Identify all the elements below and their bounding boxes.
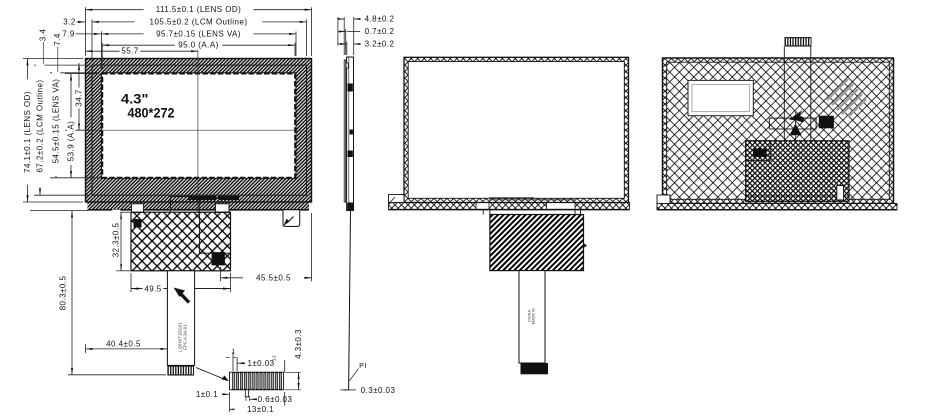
svg-text:480*272: 480*272 [128, 106, 175, 121]
svg-text:4.3": 4.3" [121, 92, 149, 107]
svg-text:0.6±0.03: 0.6±0.03 [258, 395, 293, 404]
svg-text:95.7±0.15 (LENS VA): 95.7±0.15 (LENS VA) [156, 29, 241, 38]
svg-text:FPC-4.3A-01: FPC-4.3A-01 [183, 324, 188, 350]
svg-text:12: 12 [272, 355, 278, 361]
svg-text:32.3±0.5: 32.3±0.5 [112, 223, 121, 258]
svg-text:105.5±0.2 (LCM Outline): 105.5±0.2 (LCM Outline) [150, 17, 248, 26]
svg-text:0.7±0.2: 0.7±0.2 [365, 27, 395, 36]
svg-text:7.9: 7.9 [62, 29, 75, 38]
svg-text:74.1±0.1 (LENS OD): 74.1±0.1 (LENS OD) [23, 91, 32, 173]
svg-text:3.2: 3.2 [63, 18, 76, 27]
svg-text:54.5±0.15 (LENS VA): 54.5±0.15 (LENS VA) [52, 79, 61, 164]
svg-text:111.5±0.1 (LENS OD): 111.5±0.1 (LENS OD) [156, 5, 242, 14]
svg-text:40.4±0.5: 40.4±0.5 [106, 339, 141, 348]
svg-text:CHINA: CHINA [528, 309, 532, 322]
svg-text:80.3±0.5: 80.3±0.5 [59, 276, 68, 311]
svg-text:13±0.1: 13±0.1 [247, 405, 274, 414]
svg-text:4.3±0.3: 4.3±0.3 [294, 329, 303, 359]
svg-text:PI: PI [359, 361, 367, 370]
svg-text:55.7: 55.7 [121, 47, 138, 56]
svg-text:1±0.03: 1±0.03 [247, 359, 274, 368]
svg-text:0.3±0.03: 0.3±0.03 [361, 386, 396, 395]
svg-text:4.8±0.2: 4.8±0.2 [365, 15, 395, 24]
svg-text:45.5±0.5: 45.5±0.5 [256, 274, 291, 283]
svg-text:MADE IN: MADE IN [532, 308, 536, 325]
svg-text:53.9 (A.A): 53.9 (A.A) [67, 121, 76, 162]
svg-text:67.2±0.2 (LCM Outline): 67.2±0.2 (LCM Outline) [36, 80, 45, 173]
svg-text:1±0.1: 1±0.1 [196, 390, 218, 399]
svg-text:1: 1 [232, 349, 236, 356]
svg-text:3.2±0.2: 3.2±0.2 [365, 39, 395, 48]
svg-text:95.0 (A.A): 95.0 (A.A) [178, 41, 219, 50]
svg-text:49.5: 49.5 [144, 284, 161, 293]
svg-text:3.4: 3.4 [39, 29, 48, 42]
svg-text:7.4: 7.4 [53, 33, 62, 46]
svg-text:34.7: 34.7 [75, 89, 84, 106]
